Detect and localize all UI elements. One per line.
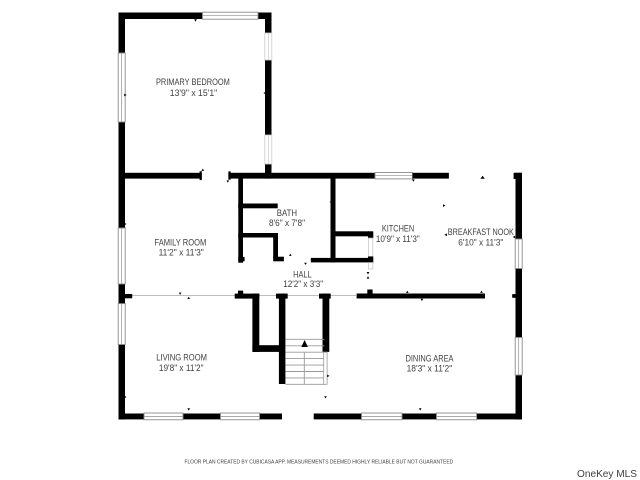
- svg-text:6'10" x 11'3": 6'10" x 11'3": [458, 237, 503, 247]
- svg-text:OneKey MLS: OneKey MLS: [577, 468, 637, 480]
- svg-text:11'2" x 11'3": 11'2" x 11'3": [159, 248, 204, 258]
- svg-text:18'3" x 11'2": 18'3" x 11'2": [407, 364, 453, 374]
- svg-text:19'8" x 11'2": 19'8" x 11'2": [159, 363, 204, 373]
- svg-text:BATH: BATH: [277, 208, 297, 218]
- svg-text:HALL: HALL: [293, 269, 312, 279]
- svg-text:8'6" x 7'8": 8'6" x 7'8": [269, 218, 305, 228]
- svg-text:10'9" x 11'3": 10'9" x 11'3": [376, 234, 420, 244]
- svg-text:BREAKFAST NOOK: BREAKFAST NOOK: [448, 227, 515, 237]
- svg-text:DINING AREA: DINING AREA: [405, 353, 454, 363]
- svg-text:FAMILY ROOM: FAMILY ROOM: [155, 237, 207, 247]
- svg-text:KITCHEN: KITCHEN: [382, 224, 414, 234]
- svg-text:FLOOR PLAN CREATED BY CUBICASA: FLOOR PLAN CREATED BY CUBICASA APP. MEAS…: [184, 460, 453, 466]
- svg-text:13'9" x 15'1": 13'9" x 15'1": [170, 88, 217, 98]
- svg-text:PRIMARY BEDROOM: PRIMARY BEDROOM: [156, 77, 230, 87]
- svg-text:12'2" x 3'3": 12'2" x 3'3": [283, 279, 323, 289]
- svg-text:LIVING ROOM: LIVING ROOM: [156, 353, 207, 363]
